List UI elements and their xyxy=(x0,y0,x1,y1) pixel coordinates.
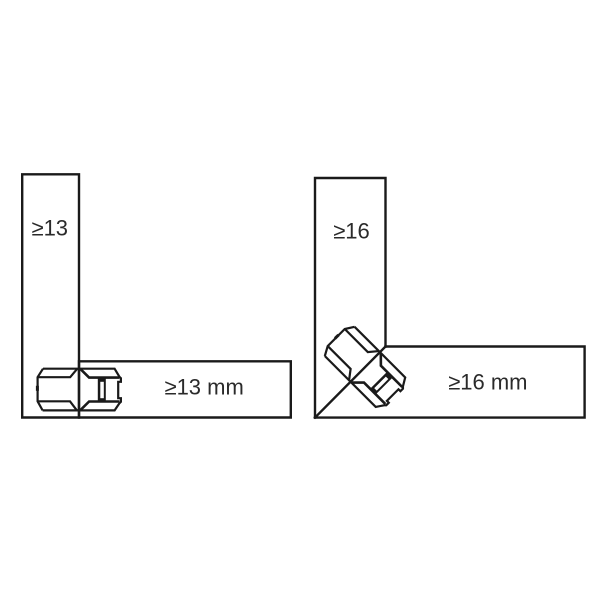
svg-text:≥13: ≥13 xyxy=(32,215,69,240)
svg-text:≥16 mm: ≥16 mm xyxy=(448,370,527,395)
svg-text:≥16: ≥16 xyxy=(333,219,370,244)
svg-text:≥13 mm: ≥13 mm xyxy=(165,375,244,400)
